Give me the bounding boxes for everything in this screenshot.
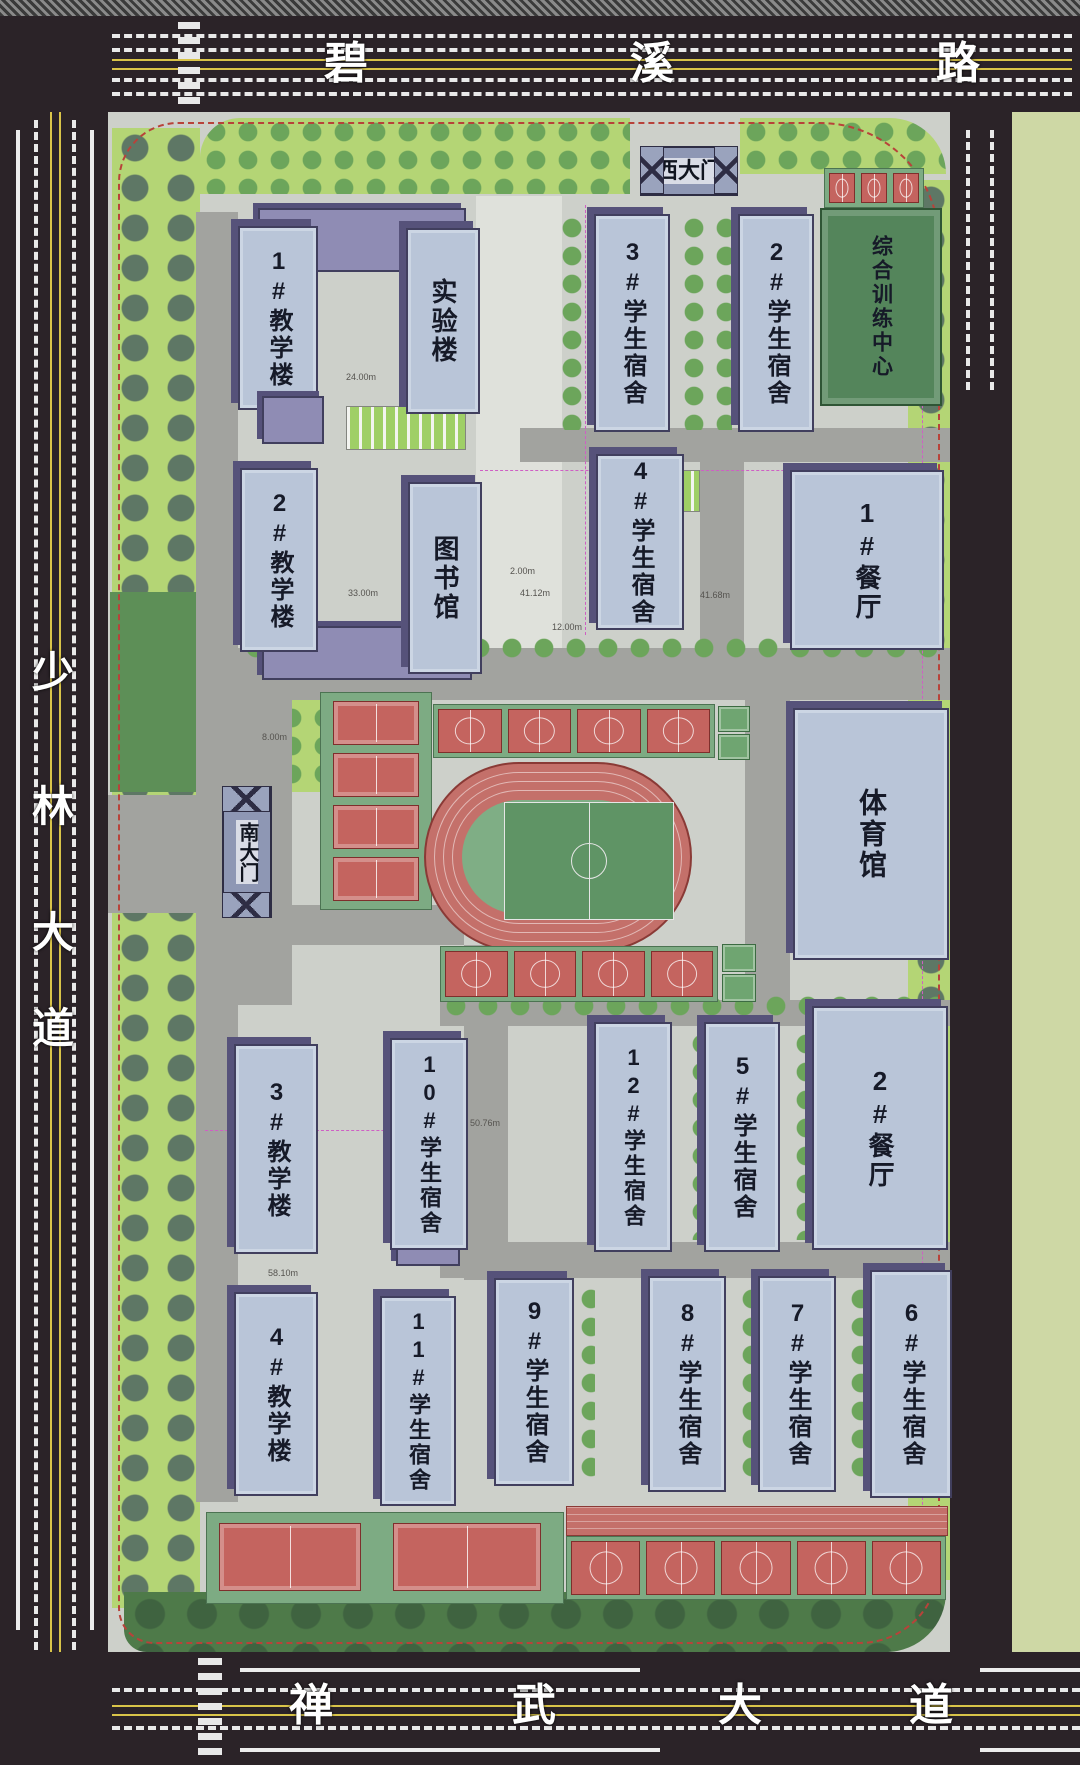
road-name-char: 禅: [289, 1684, 333, 1728]
building-label: 1#教学楼: [266, 248, 290, 389]
bleacher-band: [566, 1506, 948, 1536]
road-name-char: 道: [32, 1008, 74, 1050]
building-label: 图书馆: [432, 535, 458, 622]
road-name-char: 路: [936, 42, 980, 86]
basketball-court: [508, 709, 572, 753]
building-dorm-7: 7#学生宿舍: [758, 1276, 836, 1492]
training-courts: [824, 168, 924, 208]
tree-strip: [678, 214, 732, 430]
center-line: [50, 112, 61, 1652]
edge-line: [980, 1748, 1080, 1752]
lane-line: [112, 92, 1072, 96]
building-dorm-3: 3#学生宿舍: [594, 214, 670, 432]
crosswalk: [178, 22, 200, 108]
gate-pillar: [714, 146, 738, 194]
building-label: 6#学生宿舍: [899, 1300, 923, 1468]
south-gate: 南大门: [222, 786, 272, 918]
tree-strip: [686, 1030, 706, 1240]
building-teaching-2: 2#教学楼: [240, 468, 318, 652]
lane-line: [112, 48, 1072, 52]
basketball-row-north: [433, 704, 715, 758]
court: [393, 1523, 541, 1591]
dimension-text: 50.76m: [470, 1118, 500, 1128]
road-name-char: 大: [32, 912, 74, 954]
building-label: 3#教学楼: [264, 1079, 288, 1220]
building-canteen-2: 2#餐厅: [812, 1006, 948, 1250]
court: [333, 805, 419, 849]
basketball-court: [647, 709, 711, 753]
tree-strip: [790, 1030, 810, 1240]
green-court: [722, 944, 756, 972]
building-label: 体育馆: [857, 788, 885, 881]
basketball-court: [445, 951, 508, 997]
lane-line: [34, 120, 38, 1650]
basketball-court: [721, 1541, 790, 1595]
soccer-pitch: [504, 802, 674, 920]
building-dorm-6: 6#学生宿舍: [870, 1270, 952, 1498]
basketball-row-bottom: [566, 1536, 946, 1600]
dimension-text: 33.00m: [348, 588, 378, 598]
campus-master-plan: 碧 溪 路 少 林 大 道 禅 武 大 道: [0, 0, 1080, 1765]
dimension-text: 2.00m: [510, 566, 535, 576]
building-dorm-9: 9#学生宿舍: [494, 1278, 574, 1486]
road-name-char: 道: [909, 1684, 953, 1728]
basketball-court: [797, 1541, 866, 1595]
gate-label: 南大门: [236, 820, 258, 884]
entry-road: [108, 795, 238, 913]
building-label: 实验楼: [430, 278, 456, 365]
building-library: 图书馆: [408, 482, 482, 674]
setback-line: [585, 205, 586, 635]
building-label: 2#餐厅: [867, 1066, 893, 1190]
west-courts-strip: [320, 692, 432, 910]
basketball-court: [872, 1541, 941, 1595]
north-tree-belt: [200, 118, 630, 194]
building-dorm-2: 2#学生宿舍: [738, 214, 814, 432]
building-dorm-4: 4#学生宿舍: [596, 454, 684, 630]
dimension-text: 12.00m: [552, 622, 582, 632]
basketball-court: [438, 709, 502, 753]
court: [861, 173, 887, 203]
road-name-char: 林: [32, 786, 74, 828]
running-track: [424, 762, 692, 952]
basketball-court: [646, 1541, 715, 1595]
center-line: [112, 59, 1072, 70]
road-name-char: 大: [718, 1684, 762, 1728]
court: [333, 857, 419, 901]
dimension-text: 58.10m: [268, 1268, 298, 1278]
court: [333, 701, 419, 745]
building-label: 9#学生宿舍: [522, 1298, 546, 1466]
road-name-char: 少: [32, 652, 74, 694]
building-label: 2#学生宿舍: [764, 239, 788, 407]
court: [333, 753, 419, 797]
tree-strip: [575, 1285, 595, 1485]
building-canteen-1: 1#餐厅: [790, 470, 944, 650]
court: [829, 173, 855, 203]
edge-line: [980, 1668, 1080, 1672]
gate-pillar: [222, 892, 270, 918]
dimension-text: 41.12m: [520, 588, 550, 598]
training-center-field: 综合训练中心: [820, 208, 942, 406]
green-court: [718, 734, 750, 760]
crosswalk: [198, 1658, 222, 1760]
lane-line: [112, 34, 1072, 38]
building-label: 12#学生宿舍: [622, 1045, 644, 1229]
building-label: 1#餐厅: [854, 498, 880, 622]
north-east-tree-belt: [740, 118, 946, 174]
gate-pillar: [222, 786, 270, 812]
dimension-text: 8.00m: [262, 732, 287, 742]
building-label: 5#学生宿舍: [730, 1053, 754, 1221]
basketball-court: [582, 951, 645, 997]
building-teaching-1: 1#教学楼: [238, 226, 318, 410]
court: [219, 1523, 361, 1591]
road-name-char: 溪: [630, 42, 674, 86]
edge-line: [240, 1668, 640, 1672]
building-label: 3#学生宿舍: [620, 239, 644, 407]
road-name-char: 武: [512, 1684, 556, 1728]
dimension-text: 41.68m: [700, 590, 730, 600]
building-label: 11#学生宿舍: [407, 1309, 429, 1493]
building-annex: [262, 396, 324, 444]
building-dorm-10: 10#学生宿舍: [390, 1038, 468, 1250]
court: [893, 173, 919, 203]
basketball-court: [571, 1541, 640, 1595]
tree-strip: [845, 1285, 865, 1485]
building-dorm-11: 11#学生宿舍: [380, 1296, 456, 1506]
lane-line: [72, 120, 76, 1650]
tree-strip: [736, 1285, 756, 1485]
basketball-court: [577, 709, 641, 753]
lane-line: [112, 78, 1072, 82]
building-label: 10#学生宿舍: [418, 1052, 440, 1236]
building-label: 7#学生宿舍: [785, 1300, 809, 1468]
road-name-char: 碧: [324, 42, 368, 86]
building-gymnasium: 体育馆: [793, 708, 949, 960]
lane-line: [966, 130, 970, 390]
dimension-text: 24.00m: [346, 372, 376, 382]
north-wall-hatch: [0, 0, 1080, 16]
building-dorm-5: 5#学生宿舍: [704, 1022, 780, 1252]
building-label: 4#学生宿舍: [628, 458, 652, 626]
east-green-verge: [1012, 112, 1080, 1652]
building-dorm-8: 8#学生宿舍: [648, 1276, 726, 1492]
tree-strip: [556, 214, 594, 430]
building-dorm-12: 12#学生宿舍: [594, 1022, 672, 1252]
road-east: [950, 112, 1012, 1652]
plaza-upper: [476, 196, 562, 648]
basketball-row-south: [440, 946, 718, 1002]
gate-pillar: [640, 146, 664, 194]
edge-line: [240, 1748, 660, 1752]
building-teaching-4: 4#教学楼: [234, 1292, 318, 1496]
south-courts-left: [206, 1512, 564, 1604]
road-canteen1: [700, 462, 744, 652]
basketball-court: [514, 951, 577, 997]
building-teaching-3: 3#教学楼: [234, 1044, 318, 1254]
basketball-court: [651, 951, 714, 997]
building-label: 综合训练中心: [871, 235, 892, 379]
green-court: [722, 974, 756, 1002]
building-label: 8#学生宿舍: [675, 1300, 699, 1468]
lane-line: [990, 130, 994, 390]
building-lab: 实验楼: [406, 228, 480, 414]
green-court: [718, 706, 750, 732]
building-label: 4#教学楼: [264, 1324, 288, 1465]
building-label: 2#教学楼: [267, 490, 291, 631]
edge-line: [90, 130, 94, 1630]
west-gate: 西大门: [640, 146, 738, 196]
edge-line: [16, 130, 20, 1630]
